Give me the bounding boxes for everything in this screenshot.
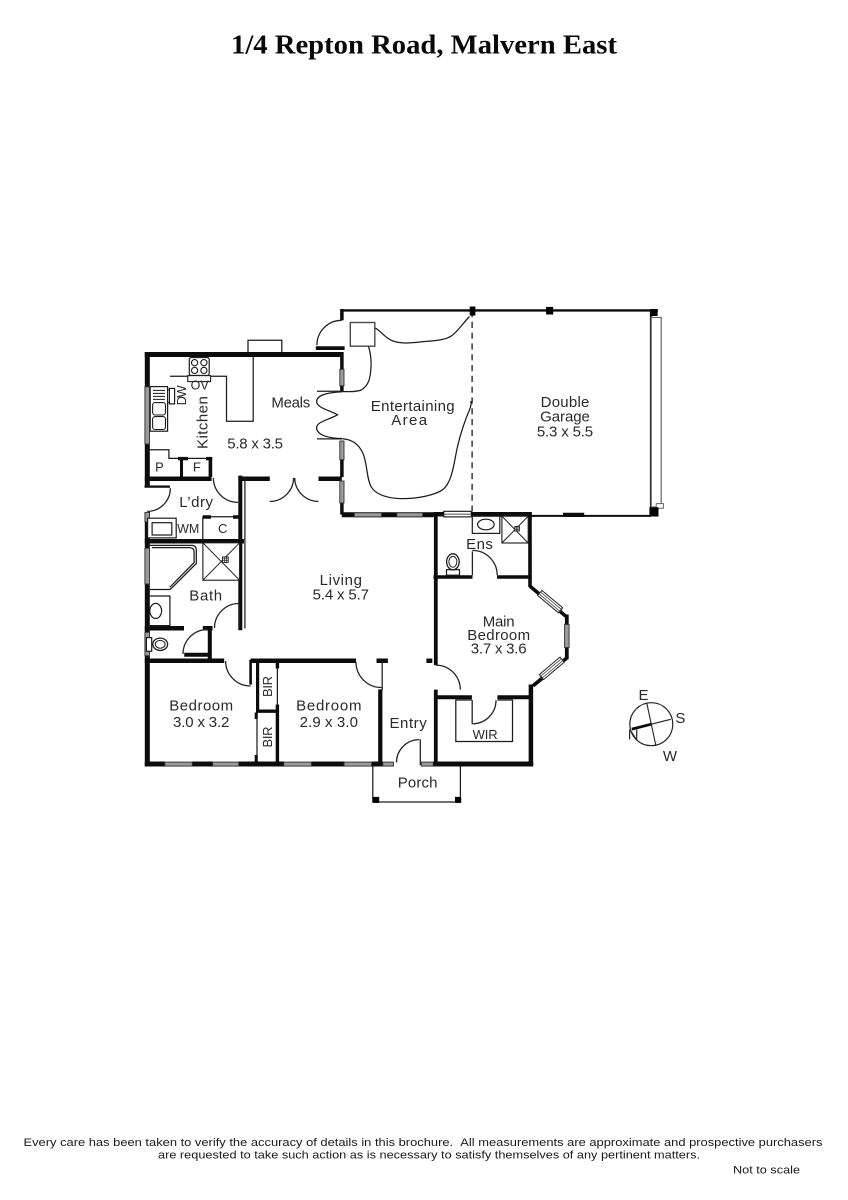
svg-text:N: N — [628, 726, 639, 743]
svg-text:S: S — [675, 710, 685, 727]
svg-text:5.3 x 5.5: 5.3 x 5.5 — [537, 424, 594, 441]
svg-text:Every care has been taken to v: Every care has been taken to verify the … — [24, 1137, 823, 1149]
svg-text:5.8 x 3.5: 5.8 x 3.5 — [227, 436, 283, 453]
svg-text:C: C — [218, 521, 227, 536]
svg-text:W: W — [663, 748, 678, 765]
svg-text:Bedroom: Bedroom — [296, 698, 362, 715]
svg-text:Meals: Meals — [271, 394, 310, 411]
svg-text:P: P — [155, 460, 164, 475]
svg-text:2.9 x 3.0: 2.9 x 3.0 — [300, 714, 359, 731]
svg-text:Entry: Entry — [389, 715, 427, 732]
svg-text:Area: Area — [391, 412, 427, 429]
svg-text:BIR: BIR — [260, 676, 275, 697]
svg-text:Bath: Bath — [189, 587, 222, 604]
svg-text:3.7 x 3.6: 3.7 x 3.6 — [471, 641, 527, 658]
svg-text:DW: DW — [174, 385, 189, 406]
svg-text:BIR: BIR — [260, 727, 275, 748]
svg-text:Ens: Ens — [466, 536, 493, 553]
svg-text:Kitchen: Kitchen — [195, 396, 212, 449]
svg-text:L’dry: L’dry — [179, 494, 213, 511]
svg-text:WM: WM — [177, 522, 199, 536]
svg-text:Bedroom: Bedroom — [169, 698, 233, 715]
svg-text:3.0 x 3.2: 3.0 x 3.2 — [173, 714, 230, 731]
svg-text:WIR: WIR — [473, 727, 498, 742]
svg-text:Porch: Porch — [398, 774, 438, 791]
svg-text:E: E — [638, 687, 648, 704]
svg-text:F: F — [193, 460, 201, 475]
svg-text:1/4 Repton Road, Malvern East: 1/4 Repton Road, Malvern East — [231, 30, 617, 60]
svg-text:OV: OV — [191, 379, 210, 393]
svg-text:5.4 x 5.7: 5.4 x 5.7 — [313, 587, 370, 604]
svg-text:Not to scale: Not to scale — [733, 1165, 800, 1177]
svg-text:are requested to take such act: are requested to take such action as is … — [158, 1150, 700, 1162]
